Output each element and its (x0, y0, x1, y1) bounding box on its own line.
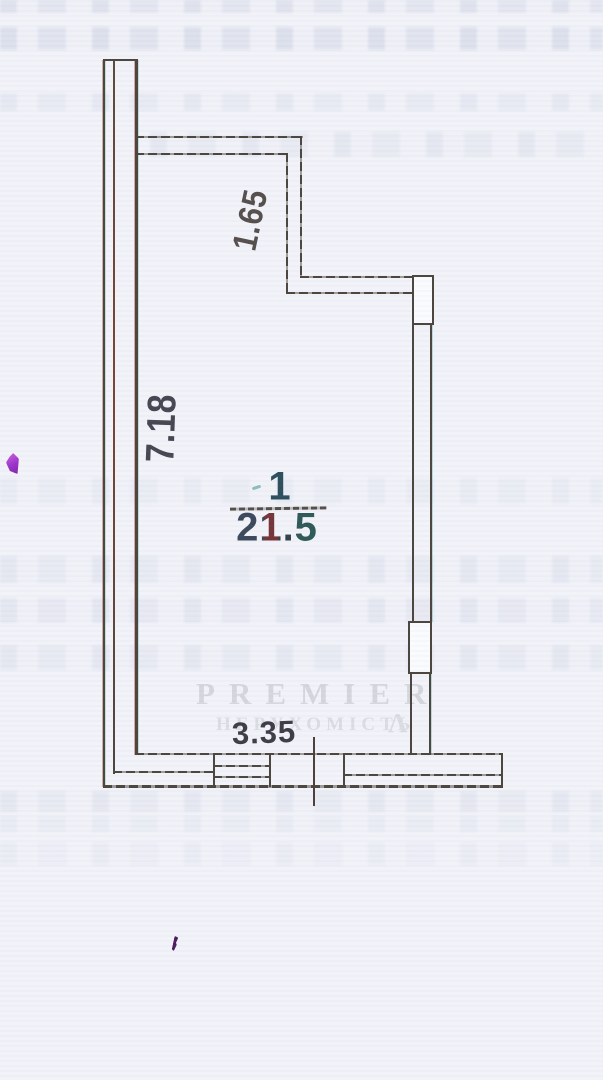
right-wall-pillar (412, 275, 434, 325)
left-wall-middle-line (113, 60, 115, 774)
bottom-window-glazing-line-1 (213, 765, 271, 767)
watermark-logo-mark: Λ (388, 708, 407, 739)
bottom-wall-left-middle-line (113, 771, 214, 773)
top-wall-inner-line (135, 153, 288, 155)
room-number-label: 1 (268, 465, 291, 510)
right-wall-upper-left-line (412, 325, 414, 622)
dimension-bottom-width-label: 3.35 (231, 714, 297, 752)
bottom-window-glazing-line-2 (213, 776, 271, 778)
right-wall-window-box (408, 621, 432, 674)
bottom-opening-right-jamb (343, 753, 345, 787)
right-wall-lower-right-line (429, 674, 431, 755)
small-ink-tick-mark (171, 936, 178, 952)
bottom-wall-bottom-line (103, 785, 503, 788)
bottom-wall-right-cap (501, 753, 503, 788)
dimension-alcove-depth-label: 1.65 (226, 186, 277, 255)
scan-noise-band (0, 645, 603, 670)
alcove-wall-inner-vertical (286, 153, 288, 294)
watermark-brand: PREMIER (196, 676, 440, 712)
right-wall-upper-right-line (430, 325, 432, 622)
scan-noise-band (0, 556, 603, 583)
bottom-wall-top-line (135, 753, 503, 755)
bottom-window-left-jamb (213, 753, 215, 787)
scan-noise-band (0, 0, 603, 13)
dimension-left-wall-height-label: 7.18 (138, 393, 185, 463)
scan-noise-band (0, 27, 603, 50)
right-wall-lower-left-line (410, 674, 412, 755)
scan-noise-band (0, 791, 603, 812)
magenta-ink-mark (6, 453, 19, 474)
room-area-label: 21.5 (236, 506, 318, 551)
bottom-window-right-jamb (269, 753, 271, 787)
dimension-tick-line (313, 737, 315, 806)
alcove-ledge-inner-line (286, 292, 413, 294)
scan-noise-band (0, 93, 603, 111)
left-wall-inner-line (135, 60, 138, 755)
scan-noise-band (0, 598, 603, 623)
scan-noise-band (0, 816, 603, 832)
scanned-floor-plan-page: PREMIER НЕРУХОМІСТЬ Λ 1.65 7.18 1 21.5 3… (0, 0, 603, 1080)
alcove-wall-outer-vertical (300, 136, 302, 278)
alcove-ledge-outer-line (300, 276, 413, 278)
scan-noise-band (0, 478, 603, 504)
top-wall-outer-line (135, 136, 303, 138)
bottom-wall-right-middle-line (343, 774, 501, 776)
left-wall-top-cap (103, 59, 138, 61)
scan-noise-band (0, 842, 603, 866)
left-wall-outer-line (103, 60, 105, 787)
